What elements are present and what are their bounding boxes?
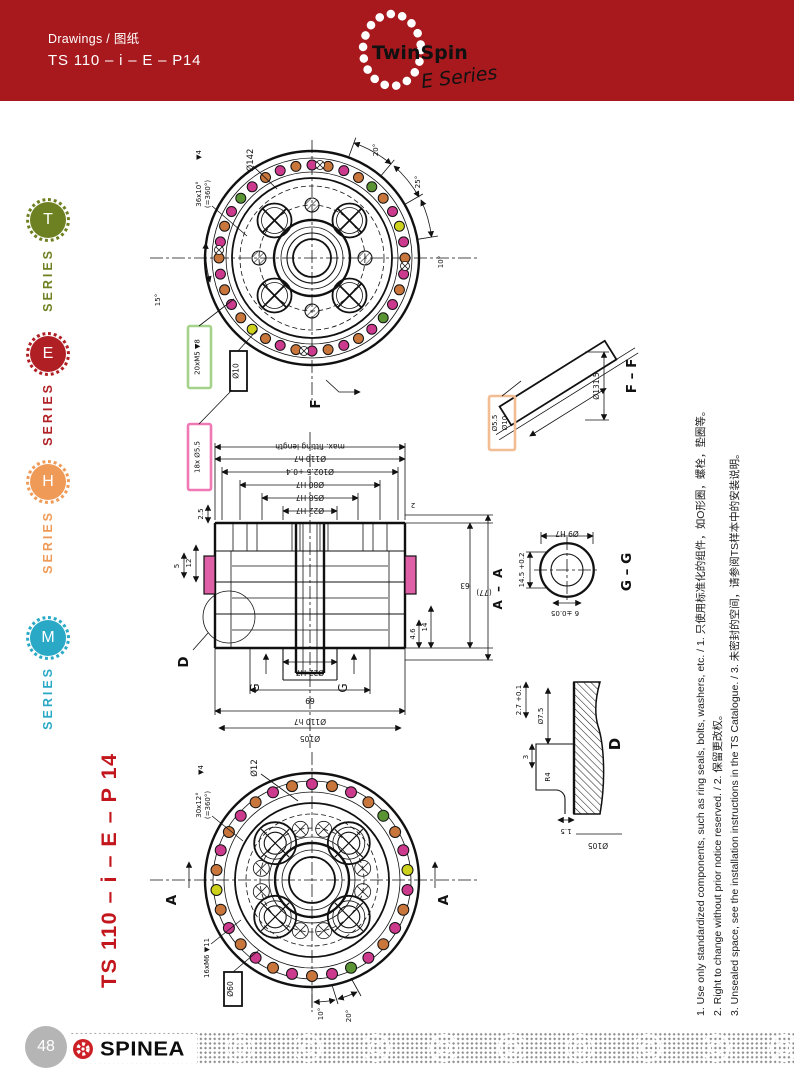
hole-callout-label: 18x Ø5.5 [194, 441, 202, 473]
section-view-aa: max. fitting length Ø110 h7 Ø102.5 +0.4 … [173, 432, 505, 748]
dim-right-77: (77) [476, 588, 491, 597]
dim-d58: Ø58 H7 [296, 493, 324, 502]
angle-label: 25° [414, 176, 422, 188]
dim-d102: Ø102.5 +0.4 [286, 467, 334, 476]
dim-chamfer: 2 [411, 501, 415, 509]
section-g-letter: G [336, 683, 350, 692]
ff-dim2: Ø10 [501, 416, 509, 430]
dim-d22: Ø22 H7 [296, 506, 324, 515]
seal-left [204, 556, 215, 594]
detail-d-letter: D [176, 656, 192, 667]
dim-left-25: 2.5 [197, 508, 205, 519]
dim-bottom-d22: Ø22 H7 [296, 668, 324, 677]
dim-right-14: 14 [421, 622, 429, 631]
catalogue-page: Drawings / 图纸 TS 110 – i – E – P14 TwinS… [0, 0, 794, 1077]
depth-label: ▼4 [197, 765, 205, 775]
ff-dim3: Ø131.5 [592, 372, 601, 400]
detail-ff-title: F – F [624, 359, 640, 394]
detail-gg: Ø9 H7 14.5 +0.2 6 ±0.05 G – G [518, 529, 635, 617]
angle-label: 10° [317, 1008, 325, 1020]
dim-d80: Ø80 H7 [296, 480, 324, 489]
outer-diameter-label: Ø142 [245, 149, 256, 172]
page-number: 48 [25, 1026, 67, 1068]
angle-label: 15° [154, 294, 162, 306]
bore-callout-label: Ø60 [226, 981, 235, 997]
spinea-wordmark: SPINEA [100, 1037, 185, 1061]
dim-fitting-length: max. fitting length [275, 442, 345, 451]
detail-ff: Ø5.5 Ø10 Ø131.5 F – F [484, 329, 645, 451]
d-dim-r4: R4 [544, 772, 552, 782]
hole-pattern-label2: (=360°) [204, 180, 212, 208]
d-dim-d105: Ø105 [588, 841, 608, 850]
bottom-flange-view: A A Ø12 ▼4 30x12° (=360°) 16xM6 ▼11 Ø60 … [150, 752, 478, 1022]
depth-label: ▼4 [195, 150, 203, 160]
gg-dim-left: 14.5 +0.2 [518, 553, 526, 588]
dim-left-12: 12 [185, 559, 193, 568]
dim-bottom-d105: Ø105 [300, 734, 320, 743]
angle-label: 20° [372, 144, 380, 156]
dim-right-46: 4.6 [409, 628, 417, 640]
spinea-gear-icon [72, 1038, 94, 1060]
thread-callout-label: 20xM5 ▼8 [194, 339, 202, 375]
d-dim-3: 3 [522, 755, 530, 759]
hole-pattern-label: 36x10° [195, 181, 203, 206]
detail-gg-title: G – G [619, 553, 635, 591]
detail-d: Ø7.5 2.7 +0.1 3 R4 1.5 Ø105 D [515, 682, 624, 850]
thread-label: 16xM6 ▼11 [203, 938, 211, 978]
dim-d110: Ø110 h7 [294, 454, 326, 463]
dim-right-63: 63 [460, 581, 470, 590]
pattern-label: 30x12° [195, 792, 203, 817]
technical-drawings: 20° 25° 10° 15° Ø142 ▼4 36x10° (=360°) 2… [0, 0, 794, 1077]
detail-d-title: D [606, 738, 624, 750]
dim-bottom-69: 69 [305, 696, 315, 705]
gg-dim-top: Ø9 H7 [555, 529, 579, 538]
ff-dim1: Ø5.5 [491, 415, 499, 432]
top-flange-view: 20° 25° 10° 15° Ø142 ▼4 36x10° (=360°) 2… [150, 138, 478, 490]
gg-dim-bottom: 6 ±0.05 [551, 609, 579, 617]
section-f-letter: F [308, 399, 324, 408]
section-a-letter-right: A [436, 894, 452, 905]
seal-right [405, 556, 416, 594]
angle-label: 20° [345, 1010, 353, 1022]
d-dim-27: 2.7 +0.1 [515, 685, 523, 715]
angle-label: 10° [437, 256, 445, 268]
section-aa-label: A – A [491, 567, 505, 610]
d-dim-15: 1.5 [560, 827, 571, 835]
d-dim-d75: Ø7.5 [537, 708, 545, 725]
dim-bottom-d110: Ø110 h7 [294, 717, 326, 726]
bore-callout-label: Ø10 [232, 363, 241, 379]
section-a-letter-left: A [164, 894, 180, 905]
spinea-logo: SPINEA [70, 1034, 197, 1063]
dim-left-5: 5 [173, 564, 181, 568]
pin-dia-label: Ø12 [249, 759, 260, 777]
pattern-label2: (=360°) [204, 791, 212, 819]
